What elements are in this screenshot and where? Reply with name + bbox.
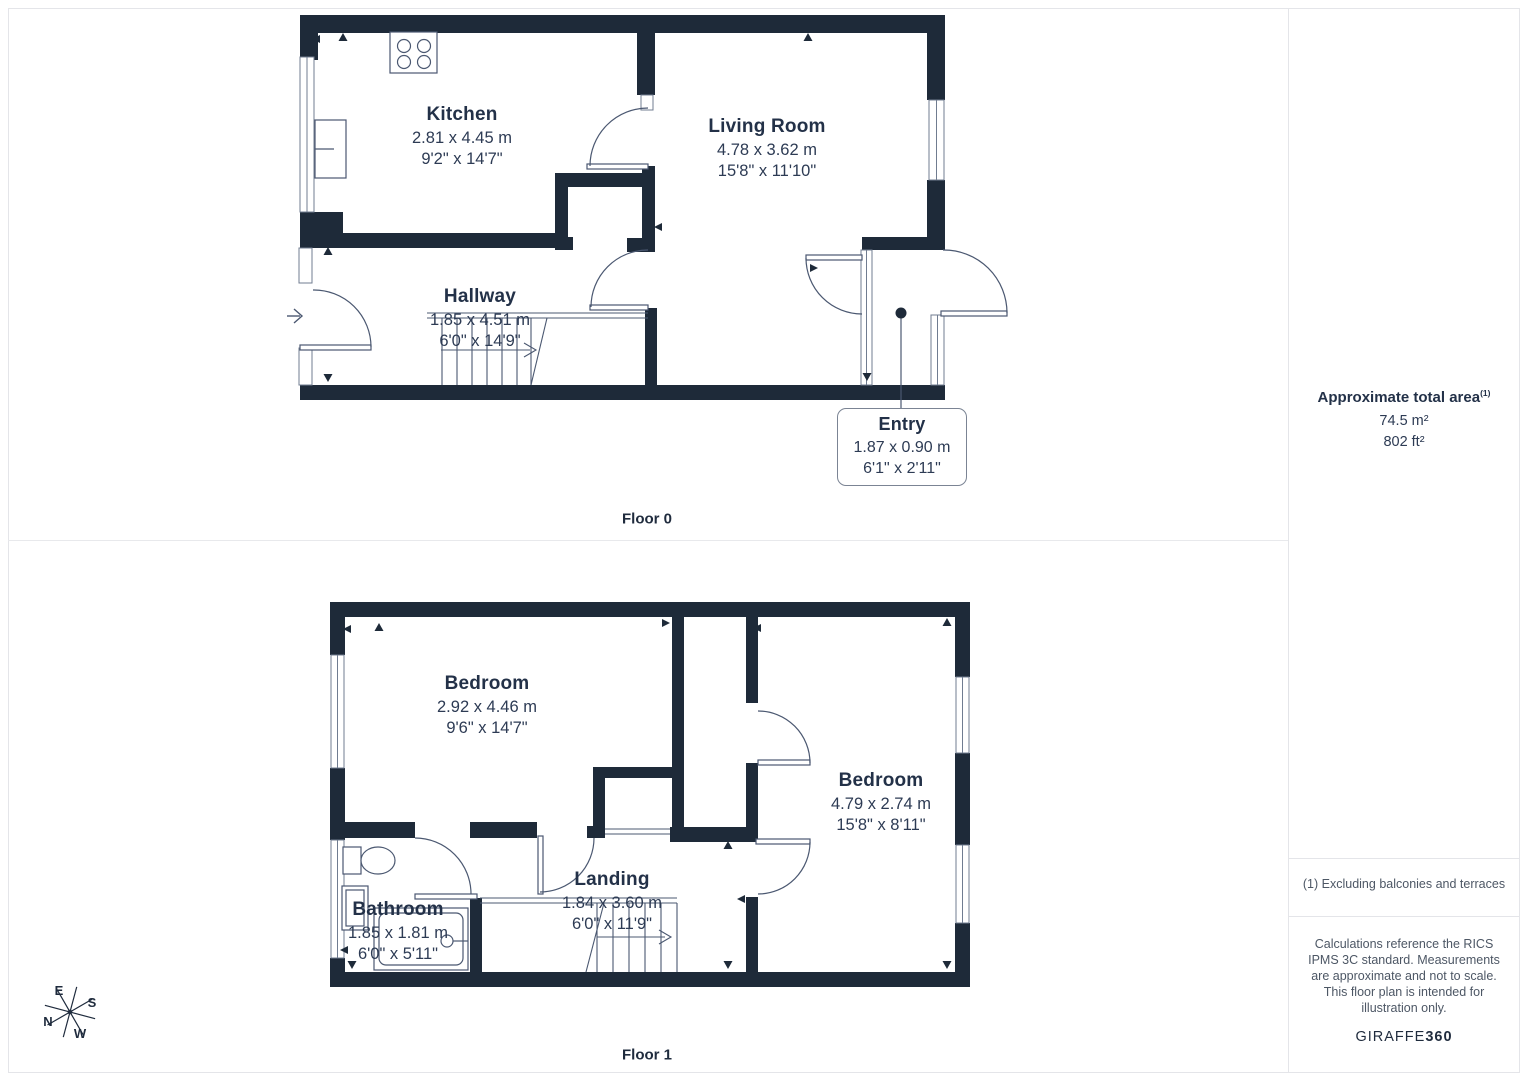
room-name: Hallway bbox=[430, 287, 530, 306]
room-name: Landing bbox=[562, 870, 662, 889]
door-leaf bbox=[758, 760, 810, 765]
room-dimensions-metric: 2.92 x 4.46 m bbox=[437, 699, 537, 716]
brand-suffix: 360 bbox=[1425, 1029, 1452, 1045]
door-leaf bbox=[300, 345, 371, 350]
total-area-title: Approximate total area(1) bbox=[1289, 388, 1519, 406]
door-arc bbox=[313, 290, 371, 347]
room-dimensions-imperial: 9'2" x 14'7" bbox=[412, 151, 512, 168]
floor1-closet-sliding-door bbox=[605, 829, 670, 834]
counter-icon bbox=[315, 120, 346, 178]
entry-marker-dot bbox=[896, 308, 907, 319]
room-dimensions-metric: 1.85 x 4.51 m bbox=[430, 312, 530, 329]
door-leaf bbox=[538, 836, 543, 894]
toilet-icon bbox=[343, 847, 395, 874]
door-arc bbox=[758, 842, 810, 894]
compass-rose: E S N W bbox=[43, 983, 96, 1041]
area-footnote: (1) Excluding balconies and terraces bbox=[1289, 877, 1519, 891]
door-arc bbox=[943, 250, 1007, 313]
room-dimensions-imperial: 15'8" x 8'11" bbox=[831, 817, 931, 834]
room-dimensions-imperial: 15'8" x 11'10" bbox=[708, 163, 825, 180]
room-name: Bedroom bbox=[437, 674, 537, 693]
door-leaf bbox=[590, 305, 648, 310]
compass-west: W bbox=[74, 1026, 87, 1041]
room-label-bathroom: Bathroom 1.85 x 1.81 m 6'0" x 5'11" bbox=[348, 900, 448, 962]
room-label-bedroom-2: Bedroom 4.79 x 2.74 m 15'8" x 8'11" bbox=[831, 771, 931, 833]
stove-icon bbox=[390, 32, 437, 73]
door-leaf bbox=[756, 839, 810, 844]
room-name: Kitchen bbox=[412, 105, 512, 124]
room-dimensions-metric: 4.78 x 3.62 m bbox=[708, 142, 825, 159]
floor0-tick-markers bbox=[312, 33, 872, 382]
room-label-living-room: Living Room 4.78 x 3.62 m 15'8" x 11'10" bbox=[708, 117, 825, 179]
room-dimensions-imperial: 6'1" x 2'11" bbox=[838, 460, 966, 478]
disclaimer-text: Calculations reference the RICS IPMS 3C … bbox=[1305, 936, 1503, 1016]
room-label-hallway: Hallway 1.85 x 4.51 m 6'0" x 14'9" bbox=[430, 287, 530, 349]
room-name: Bathroom bbox=[348, 900, 448, 919]
door-arc bbox=[590, 108, 648, 166]
total-area-imperial: 802 ft² bbox=[1289, 434, 1519, 450]
room-dimensions-metric: 1.84 x 3.60 m bbox=[562, 895, 662, 912]
room-dimensions-imperial: 6'0" x 5'11" bbox=[348, 946, 448, 963]
door-sidelight bbox=[299, 248, 312, 283]
room-label-bedroom-1: Bedroom 2.92 x 4.46 m 9'6" x 14'7" bbox=[437, 674, 537, 736]
room-name: Bedroom bbox=[831, 771, 931, 790]
room-name: Entry bbox=[838, 414, 966, 435]
total-area-title-text: Approximate total area bbox=[1318, 389, 1481, 406]
room-dimensions-imperial: 6'0" x 11'9" bbox=[562, 916, 662, 933]
door-leaf bbox=[941, 311, 1007, 316]
door-arc bbox=[591, 250, 648, 307]
room-dimensions-imperial: 9'6" x 14'7" bbox=[437, 720, 537, 737]
room-name: Living Room bbox=[708, 117, 825, 136]
door-leaf bbox=[587, 164, 648, 169]
room-dimensions-metric: 1.85 x 1.81 m bbox=[348, 925, 448, 942]
door-arc bbox=[415, 838, 471, 894]
giraffe360-logo: GIRAFFE360 bbox=[1289, 1029, 1519, 1045]
door-sidelight bbox=[299, 348, 312, 385]
total-area-title-superscript: (1) bbox=[1480, 388, 1490, 398]
compass-south: S bbox=[88, 995, 97, 1010]
room-dimensions-metric: 1.87 x 0.90 m bbox=[838, 439, 966, 457]
floor0-windows bbox=[299, 57, 944, 385]
compass-east: E bbox=[55, 983, 64, 998]
room-dimensions-imperial: 6'0" x 14'9" bbox=[430, 333, 530, 350]
floor-0-caption: Floor 0 bbox=[622, 511, 672, 528]
floor-1-caption: Floor 1 bbox=[622, 1047, 672, 1064]
floor0-entrance-arrow bbox=[287, 309, 302, 323]
room-label-landing: Landing 1.84 x 3.60 m 6'0" x 11'9" bbox=[562, 870, 662, 932]
room-dimensions-metric: 2.81 x 4.45 m bbox=[412, 130, 512, 147]
room-label-kitchen: Kitchen 2.81 x 4.45 m 9'2" x 14'7" bbox=[412, 105, 512, 167]
entry-callout-box: Entry 1.87 x 0.90 m 6'1" x 2'11" bbox=[837, 408, 967, 486]
brand-name: GIRAFFE bbox=[1355, 1029, 1425, 1045]
door-arc bbox=[758, 711, 810, 763]
total-area-metric: 74.5 m² bbox=[1289, 413, 1519, 429]
compass-north: N bbox=[43, 1014, 52, 1029]
room-dimensions-metric: 4.79 x 2.74 m bbox=[831, 796, 931, 813]
door-leaf bbox=[806, 255, 862, 260]
